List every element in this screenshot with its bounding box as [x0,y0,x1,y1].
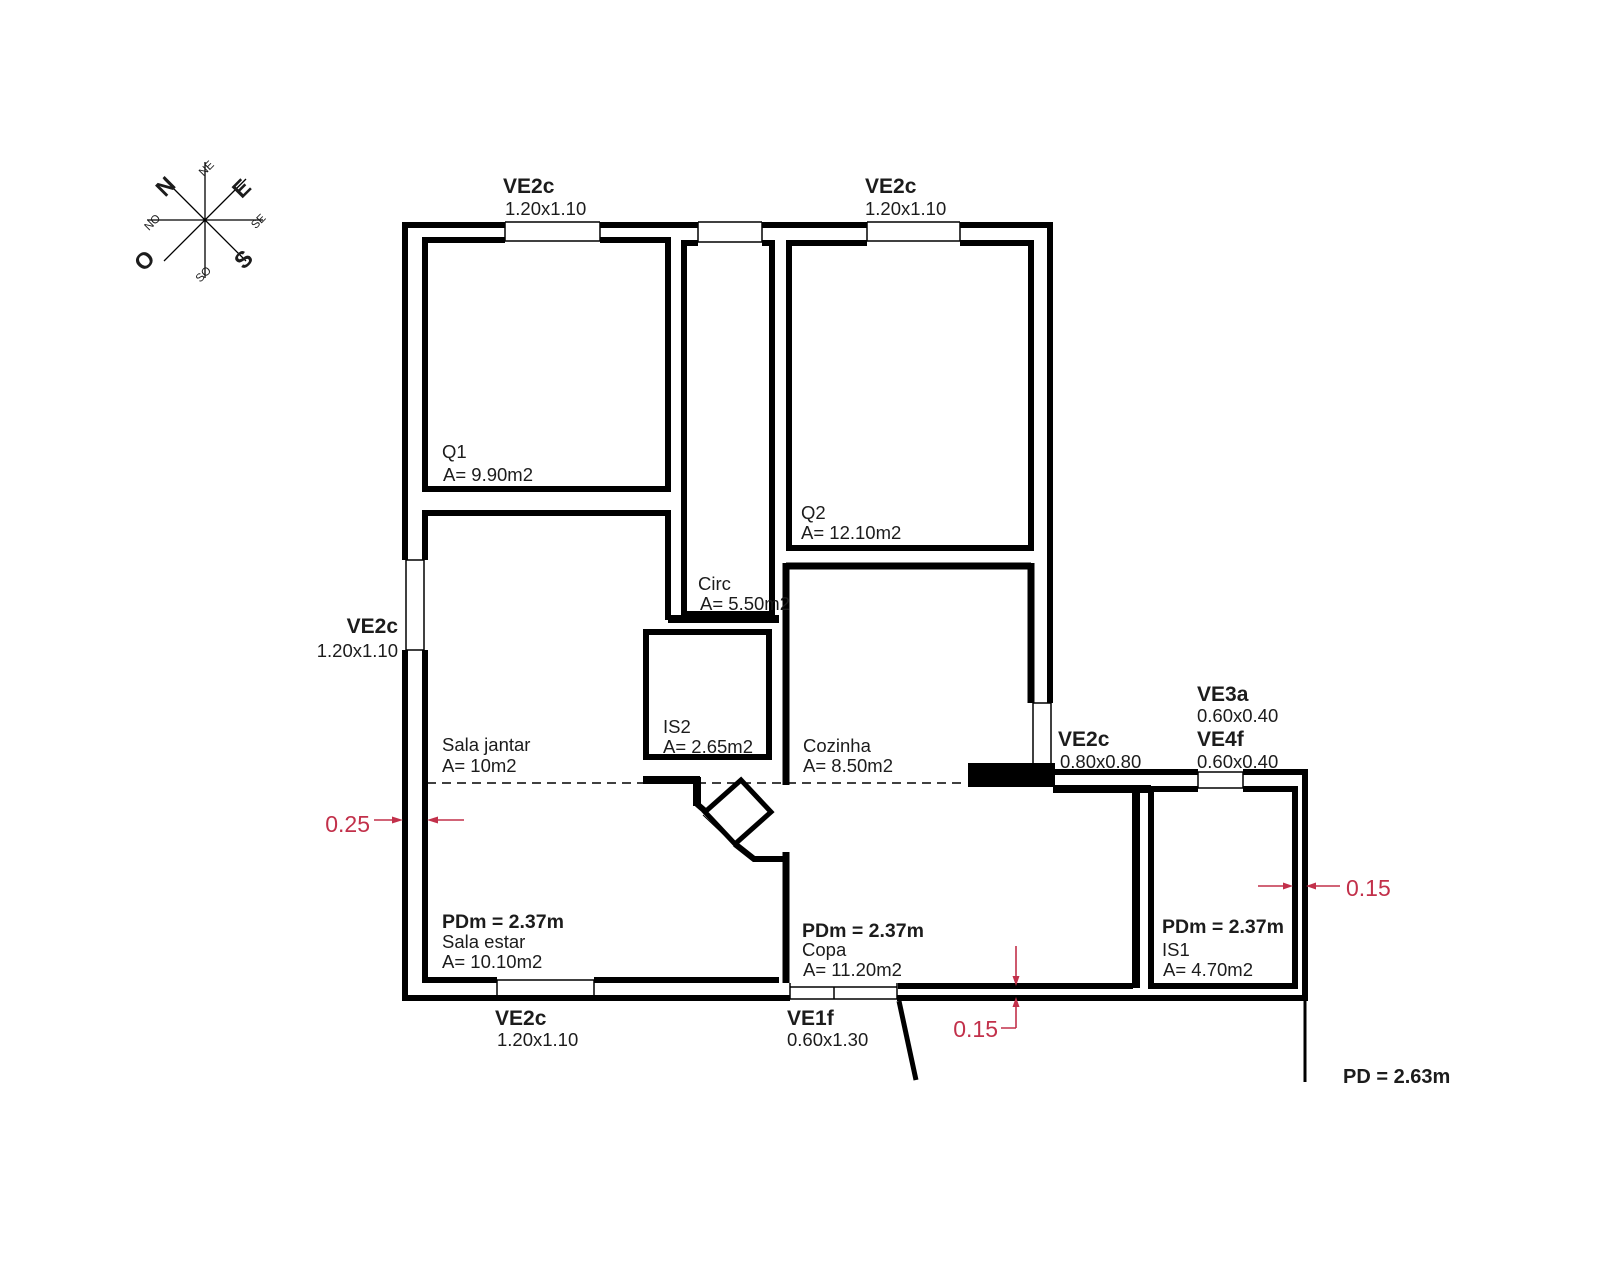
windows-glazing [406,222,1243,999]
window-left-code: VE2c [347,615,399,638]
room-sala-jantar-name: Sala jantar [442,734,530,755]
compass-rose: N E S O NE SE SO NO [129,159,269,285]
room-circ-name: Circ [698,573,731,594]
compass-label-e: E [227,174,256,203]
window-ve4f-code: VE4f [1197,728,1245,751]
room-walls [422,240,1295,988]
window-ve4f-glass [1198,772,1243,788]
room-cozinha-area: A= 8.50m2 [803,755,893,776]
dimension-left-wall [374,817,464,824]
room-q1-area: A= 9.90m2 [443,464,533,485]
compass-label-so: SO [194,265,214,285]
floor-plan-canvas: N E S O NE SE SO NO 0.25 0.15 0.15 VE2c … [0,0,1600,1280]
room-sala-jantar-area: A= 10m2 [442,755,517,776]
window-bottom-glass [497,980,594,996]
room-sala-estar-name: Sala estar [442,931,525,952]
door-leaf-entrance [899,1001,916,1080]
room-circ-area: A= 5.50m2 [700,593,790,614]
window-top-right-code: VE2c [865,175,917,198]
dimension-right-value: 0.15 [1346,875,1391,901]
door-leaf-hall [705,780,771,844]
window-kitchen-glass [1033,703,1051,765]
room-is2-name: IS2 [663,716,691,737]
window-top-left-glass [505,222,600,241]
room-copa-name: Copa [802,939,847,960]
room-is1-area: A= 4.70m2 [1163,959,1253,980]
window-top-left-size: 1.20x1.10 [505,198,586,219]
room-q2-area: A= 12.10m2 [801,522,901,543]
dimension-right-wall [1258,883,1340,890]
dimension-left-value: 0.25 [325,811,370,837]
window-entrance-size: 0.60x1.30 [787,1029,868,1050]
compass-label-ne: NE [197,159,217,179]
window-ve3a-size: 0.60x0.40 [1197,705,1278,726]
compass-label-no: NO [143,212,164,233]
room-is2-area: A= 2.65m2 [663,736,753,757]
window-top-circ-glass [698,222,762,242]
window-entrance-glass [790,983,897,999]
exterior-walls [402,222,1308,1001]
room-is1-pdm: PDm = 2.37m [1162,916,1284,938]
room-q2-name: Q2 [801,502,826,523]
window-kitchen-size: 0.80x0.80 [1060,751,1141,772]
window-ve3a-code: VE3a [1197,683,1249,706]
room-is1-name: IS1 [1162,939,1190,960]
compass-label-o: O [129,245,160,276]
window-left-size: 1.20x1.10 [317,640,398,661]
dimension-bottom-value: 0.15 [953,1016,998,1042]
window-top-right-size: 1.20x1.10 [865,198,946,219]
window-kitchen-code: VE2c [1058,728,1110,751]
window-top-left-code: VE2c [503,175,555,198]
window-left-glass [406,560,424,650]
room-copa-area: A= 11.20m2 [803,959,902,980]
window-bottom-code: VE2c [495,1007,547,1030]
floor-plan-drawing: N E S O NE SE SO NO 0.25 0.15 0.15 VE2c … [0,0,1600,1280]
compass-label-n: N [150,171,180,201]
compass-label-s: S [229,245,258,274]
wall-step [968,763,1055,787]
window-ve4f-size: 0.60x0.40 [1197,751,1278,772]
window-bottom-size: 1.20x1.10 [497,1029,578,1050]
wall-circ [684,243,772,614]
room-labels: Q1 A= 9.90m2 Sala jantar A= 10m2 Circ A=… [442,441,1284,980]
window-top-right-glass [867,222,960,241]
window-entrance-code: VE1f [787,1007,835,1030]
room-q1-name: Q1 [442,441,467,462]
ceiling-height-note: PD = 2.63m [1343,1066,1450,1088]
room-cozinha-name: Cozinha [803,735,872,756]
compass-label-se: SE [249,212,269,232]
room-sala-estar-area: A= 10.10m2 [442,951,542,972]
room-sala-estar-pdm: PDm = 2.37m [442,911,564,933]
door-foot-hall [735,844,783,859]
